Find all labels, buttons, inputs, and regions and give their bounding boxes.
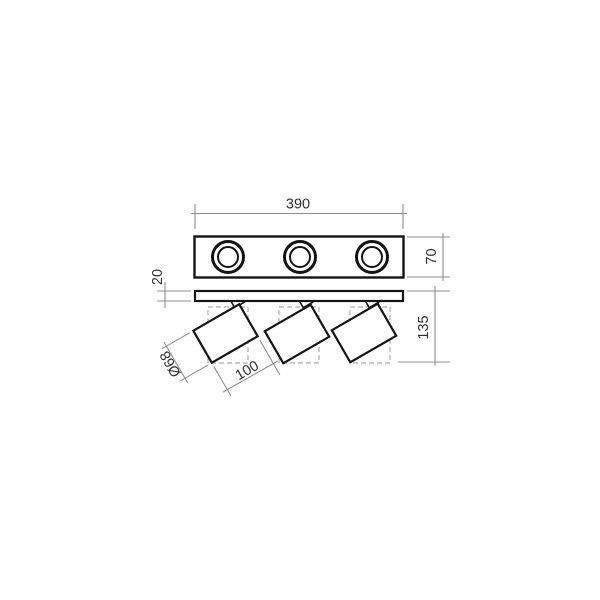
dimension-label-20: 20 [150,269,166,285]
spot-head-1 [193,304,257,363]
dimension-plate-depth: 70 [407,233,450,281]
mounting-rail [195,291,403,301]
dimension-label-68: Ø68 [157,348,185,380]
spot-aperture-3-inner [362,247,382,267]
dimension-label-135: 135 [416,315,432,339]
dimension-overall-height: 135 [398,286,450,366]
spot-aperture-1-inner [218,247,238,267]
dimension-base-thickness: 20 [150,269,191,308]
spot-head-3 [332,304,396,363]
drawing-canvas: 390 70 20 [0,0,600,600]
side-view [193,291,403,363]
spot-head-2 [265,305,329,364]
extension-line [214,366,231,395]
dimension-label-100: 100 [233,358,262,384]
dimension-drawing: 390 70 20 [0,0,600,600]
spot-aperture-2-inner [290,247,310,267]
dimension-label-390: 390 [286,197,310,213]
top-view [195,237,404,278]
dimension-rail-width: 390 [191,197,407,230]
dimension-label-70: 70 [424,248,440,264]
